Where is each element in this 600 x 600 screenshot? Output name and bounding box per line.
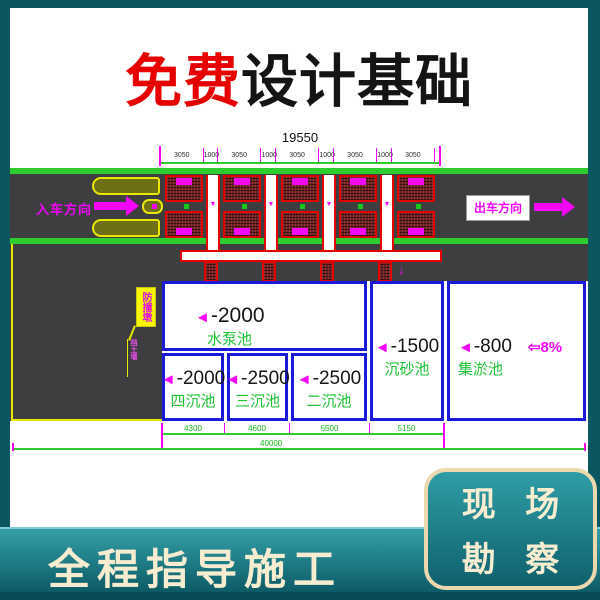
page-background: 免费设计基础 19550 3050 1000 3050 1000 3050 10… <box>0 0 600 600</box>
dimension-segment-label: 1000 <box>261 148 275 162</box>
dimension-tick <box>161 423 163 450</box>
tank-second-settling: ◄-2500 二沉池 <box>291 353 367 421</box>
elevation-marker-icon: ◄ <box>225 371 240 388</box>
slope-label: ⇦8% <box>528 338 562 356</box>
flow-down-icon: ▼ <box>324 201 334 208</box>
dimension-segment-label: 1000 <box>204 148 218 162</box>
tank-name: 二沉池 <box>306 390 351 411</box>
overall-dimension-line <box>12 448 586 450</box>
drain-stub <box>378 261 392 282</box>
wash-bay-row: ▼ ▼ ▼ ▼ <box>162 175 438 238</box>
apron-edge-line <box>11 244 13 421</box>
tank-third-settling: ◄-2500 三沉池 <box>227 353 288 421</box>
exit-arrow-icon <box>534 203 562 211</box>
dimension-tick <box>584 443 586 451</box>
elevation-marker-icon: ◄ <box>195 309 210 326</box>
wash-bay <box>278 175 322 238</box>
tank-silt-collection: ◄-800 ⇦8% 集淤池 <box>447 281 586 421</box>
tank-elevation: ◄-2500 <box>297 368 361 390</box>
tank-elevation: ◄-2500 <box>225 368 289 390</box>
annotation-wall-label: 挡土墙 <box>127 339 138 377</box>
apron-edge-line <box>11 419 163 421</box>
drain-stub <box>262 261 276 282</box>
bottom-total-dimension-label: 40000 <box>260 439 282 448</box>
bottom-edge-strip <box>0 592 600 600</box>
wash-bay <box>394 175 438 238</box>
dimension-segment-label: 3050 <box>218 148 262 162</box>
top-dimension-row: 3050 1000 3050 1000 3050 1000 3050 1000 … <box>160 148 440 164</box>
bottom-dim-label: 5150 <box>370 423 444 433</box>
traffic-island <box>92 177 160 195</box>
paved-apron <box>10 244 162 421</box>
dimension-tick <box>443 423 445 450</box>
tank-name: 四沉池 <box>170 390 215 411</box>
elevation-marker-icon: ◄ <box>375 339 390 356</box>
flow-down-icon: ▼ <box>382 201 392 208</box>
drain-header-channel <box>180 250 442 262</box>
tank-elevation: ◄-2000 <box>195 304 364 328</box>
elevation-marker-icon: ◄ <box>458 339 473 356</box>
dimension-segment-label: 1000 <box>377 148 391 162</box>
elevation-marker-icon: ◄ <box>297 371 312 388</box>
wash-bay <box>336 175 380 238</box>
top-total-dimension-label: 19550 <box>160 130 440 145</box>
page-title: 免费设计基础 <box>10 36 588 118</box>
tank-name: 水泵池 <box>195 328 364 349</box>
dimension-tick <box>439 146 441 166</box>
tank-elevation: ◄-800 <box>458 336 512 358</box>
bottom-dimension-row: 4300 4600 5500 5150 <box>162 423 444 435</box>
bottom-dim-label: 5500 <box>290 423 370 433</box>
tank-sand-settling: ◄-1500 沉砂池 <box>370 281 444 421</box>
flow-down-icon: ▼ <box>208 201 218 208</box>
tank-elevation: ◄-2000 <box>161 368 225 390</box>
flow-down-icon: ▼ <box>266 201 276 208</box>
drain-channel: ▼ <box>206 175 220 252</box>
footer-banner-text: 全程指导施工 <box>48 536 342 597</box>
title-rest: 设计基础 <box>241 50 473 114</box>
elevation-marker-icon: ◄ <box>161 371 176 388</box>
drain-channel: ▼ <box>380 175 394 252</box>
entry-arrow-icon <box>94 202 126 210</box>
badge-line1: 现 场 <box>452 477 569 526</box>
dimension-segment-label: 3050 <box>392 148 436 162</box>
site-survey-badge: 现 场 勘 察 <box>424 468 597 590</box>
annotation-island-label: 防撞墩 <box>136 287 156 327</box>
title-highlight: 免费 <box>125 50 241 114</box>
tank-elevation: ◄-1500 <box>375 336 439 358</box>
dimension-segment-label: 3050 <box>276 148 320 162</box>
bottom-dim-label: 4600 <box>225 423 290 433</box>
drain-stub <box>320 261 334 282</box>
traffic-island <box>92 219 160 237</box>
drain-stub <box>204 261 218 282</box>
tank-name: 沉砂池 <box>384 358 429 379</box>
dimension-tick <box>12 443 14 451</box>
dimension-segment-label: 1000 <box>319 148 333 162</box>
badge-line2: 勘 察 <box>452 532 569 581</box>
exit-direction-label: 出车方向 <box>466 195 530 221</box>
wash-bay <box>220 175 264 238</box>
inlet-arrow-icon: ↓ <box>398 262 405 277</box>
bottom-dim-label: 4300 <box>162 423 225 433</box>
dimension-segment-label: 3050 <box>160 148 204 162</box>
drain-channel: ▼ <box>322 175 336 252</box>
dimension-segment-label: 3050 <box>334 148 378 162</box>
tank-name: 三沉池 <box>235 390 280 411</box>
tank-fourth-settling: ◄-2000 四沉池 <box>162 353 224 421</box>
tank-pump: ◄-2000 水泵池 <box>162 281 367 351</box>
dimension-tick <box>159 146 161 166</box>
entry-direction-label: 入车方向 <box>36 199 92 218</box>
drain-channel: ▼ <box>264 175 278 252</box>
tank-name: 集淤池 <box>458 358 583 379</box>
wash-bay <box>162 175 206 238</box>
traffic-island-pad <box>142 199 163 214</box>
